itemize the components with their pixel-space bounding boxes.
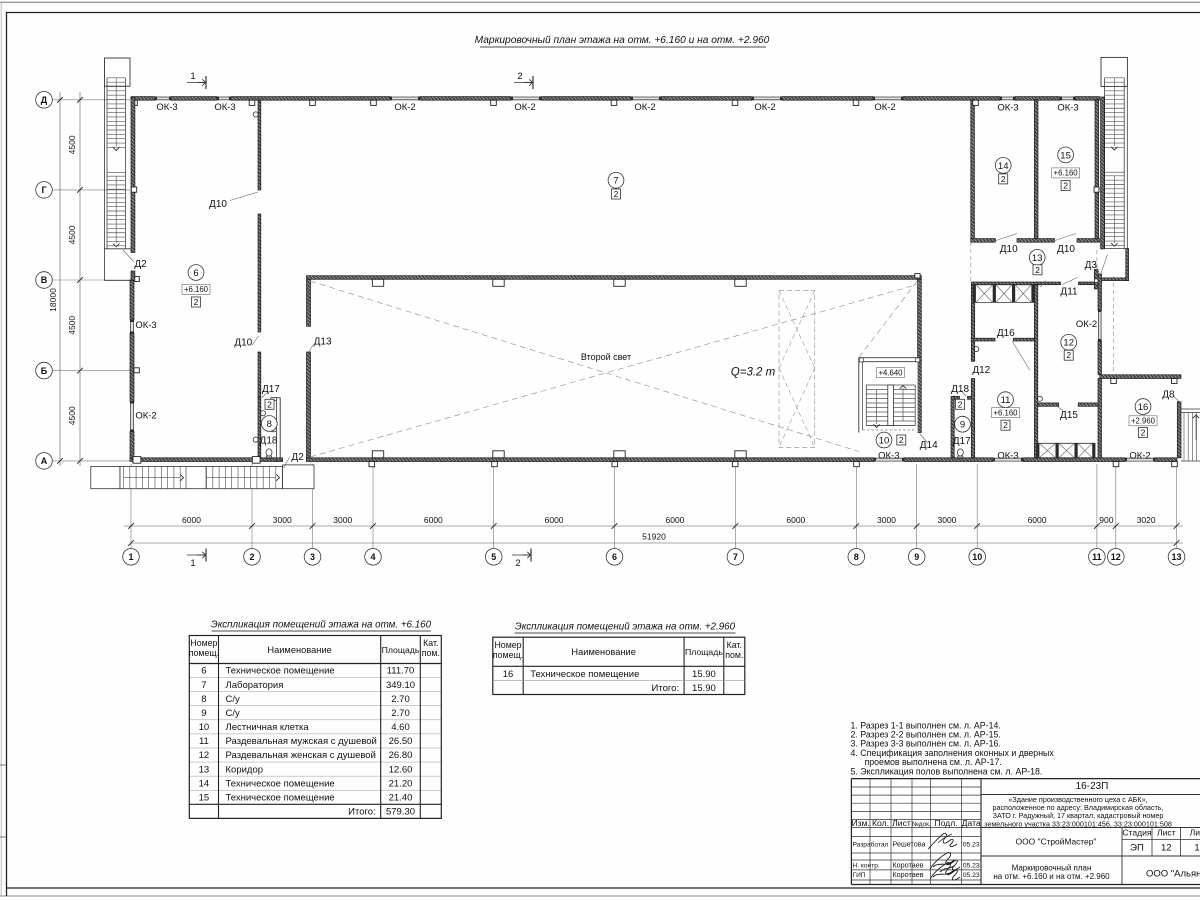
svg-text:№док.: №док.	[912, 821, 931, 828]
svg-text:Экспликация помещений этажа на: Экспликация помещений этажа на отм. +6.1…	[211, 620, 432, 631]
svg-text:Д10: Д10	[1057, 244, 1075, 255]
svg-text:Н. контр.: Н. контр.	[853, 862, 880, 869]
svg-text:Раздевальная мужская с душевой: Раздевальная мужская с душевой	[226, 736, 377, 747]
svg-text:6: 6	[193, 268, 198, 279]
svg-text:ООО "Альянс": ООО "Альянс"	[1146, 869, 1200, 880]
svg-text:ОК-2: ОК-2	[394, 102, 415, 113]
svg-text:2: 2	[517, 71, 522, 82]
svg-text:ОК-2: ОК-2	[1076, 319, 1097, 330]
svg-text:Второй свет: Второй свет	[581, 352, 631, 362]
svg-text:+2.960: +2.960	[1131, 417, 1156, 426]
svg-text:21.40: 21.40	[389, 792, 413, 803]
svg-text:26.80: 26.80	[389, 750, 413, 761]
svg-text:2: 2	[194, 297, 199, 307]
svg-text:Итого:: Итого:	[348, 807, 376, 818]
svg-text:4.60: 4.60	[391, 722, 410, 733]
svg-text:Площадь: Площадь	[685, 647, 723, 657]
svg-text:5. Экспликация полов выполнена: 5. Экспликация полов выполнена см. л. АР…	[851, 766, 1043, 776]
svg-text:Маркировочный план этажа на от: Маркировочный план этажа на отм. +6.160 …	[475, 35, 770, 46]
svg-text:Лист: Лист	[1157, 828, 1176, 838]
svg-text:ОК-3: ОК-3	[135, 320, 156, 331]
svg-text:ОК-2: ОК-2	[754, 102, 775, 113]
svg-text:900: 900	[1099, 515, 1113, 525]
svg-text:8: 8	[201, 694, 206, 705]
svg-text:9: 9	[960, 420, 965, 431]
svg-text:Д8: Д8	[1162, 389, 1175, 400]
svg-text:5: 5	[491, 552, 496, 562]
svg-text:9: 9	[201, 708, 206, 719]
svg-text:Номер: Номер	[190, 638, 217, 648]
svg-text:4500: 4500	[67, 135, 77, 154]
svg-text:15: 15	[1060, 150, 1071, 161]
svg-text:7: 7	[733, 552, 738, 562]
svg-text:ЭП: ЭП	[1130, 843, 1144, 854]
svg-text:2: 2	[1035, 265, 1040, 275]
svg-text:4500: 4500	[67, 225, 77, 244]
svg-text:Г: Г	[41, 185, 46, 195]
svg-text:8: 8	[267, 419, 272, 430]
svg-text:6: 6	[201, 666, 206, 677]
svg-text:Д12: Д12	[972, 365, 990, 376]
svg-text:на отм. +6.160 и на отм. +2.96: на отм. +6.160 и на отм. +2.960	[993, 872, 1110, 881]
svg-text:Коридор: Коридор	[226, 764, 264, 775]
svg-text:12: 12	[1063, 338, 1074, 349]
svg-text:11: 11	[1092, 552, 1102, 562]
svg-text:Д10: Д10	[209, 199, 227, 210]
svg-text:26.50: 26.50	[389, 736, 413, 747]
svg-text:2: 2	[267, 399, 272, 409]
svg-text:Д3: Д3	[1085, 260, 1098, 271]
svg-text:помещ.: помещ.	[189, 648, 219, 658]
svg-text:Лаборатория: Лаборатория	[226, 680, 284, 691]
svg-text:Д2: Д2	[134, 259, 147, 270]
svg-text:1: 1	[190, 71, 195, 82]
svg-text:10: 10	[972, 552, 982, 562]
svg-text:Д11: Д11	[1060, 287, 1078, 298]
svg-text:4500: 4500	[67, 406, 77, 425]
svg-text:пом.: пом.	[725, 650, 743, 660]
svg-text:579.30: 579.30	[386, 807, 415, 818]
svg-text:В: В	[41, 275, 48, 285]
svg-text:6000: 6000	[545, 515, 564, 525]
svg-text:Д10: Д10	[1000, 244, 1018, 255]
svg-text:349.10: 349.10	[386, 680, 415, 691]
svg-text:2.70: 2.70	[391, 708, 410, 719]
svg-text:Лестничная клетка: Лестничная клетка	[226, 722, 310, 733]
svg-text:11: 11	[199, 736, 209, 747]
svg-text:16-23П: 16-23П	[1076, 781, 1109, 792]
svg-text:2.70: 2.70	[391, 694, 410, 705]
svg-text:2: 2	[1063, 181, 1068, 191]
svg-text:111.70: 111.70	[387, 666, 415, 677]
svg-text:7: 7	[201, 680, 206, 691]
svg-text:Изм.: Изм.	[851, 818, 869, 828]
svg-text:Д15: Д15	[1060, 410, 1078, 421]
svg-text:Д10: Д10	[234, 337, 252, 348]
svg-text:11: 11	[1001, 395, 1011, 406]
svg-text:2: 2	[515, 558, 520, 569]
svg-text:ОК-2: ОК-2	[514, 102, 535, 113]
svg-text:7: 7	[613, 176, 618, 187]
svg-text:6000: 6000	[182, 515, 201, 525]
svg-text:ОК-3: ОК-3	[1057, 103, 1078, 114]
svg-text:16: 16	[503, 669, 514, 680]
svg-text:Коротаев: Коротаев	[893, 870, 924, 879]
svg-text:пом.: пом.	[422, 648, 440, 658]
svg-text:Решетова: Решетова	[893, 840, 926, 849]
svg-text:12: 12	[199, 750, 210, 761]
svg-text:12: 12	[1111, 552, 1121, 562]
svg-text:3000: 3000	[273, 515, 292, 525]
svg-text:Д2: Д2	[291, 452, 304, 463]
svg-text:2: 2	[899, 435, 904, 445]
svg-text:6: 6	[612, 552, 617, 562]
svg-text:6000: 6000	[424, 515, 443, 525]
svg-text:Б: Б	[41, 366, 48, 376]
svg-text:6000: 6000	[665, 515, 684, 525]
svg-text:13: 13	[199, 764, 210, 775]
svg-text:+6.160: +6.160	[1054, 169, 1079, 178]
svg-text:ОК-3: ОК-3	[997, 103, 1018, 114]
svg-text:15: 15	[199, 792, 210, 803]
svg-text:18000: 18000	[48, 288, 58, 312]
svg-text:Лист: Лист	[892, 818, 911, 828]
svg-text:21.20: 21.20	[389, 778, 413, 789]
svg-text:Стадия: Стадия	[1122, 828, 1152, 838]
svg-text:ООО "СтройМастер": ООО "СтройМастер"	[1016, 837, 1097, 847]
svg-text:Площадь: Площадь	[382, 645, 420, 655]
svg-text:1: 1	[128, 552, 133, 562]
svg-text:ОК-3: ОК-3	[214, 102, 235, 113]
svg-text:Д: Д	[41, 95, 48, 105]
svg-text:Лис: Лис	[1190, 828, 1200, 838]
svg-text:ОК-2: ОК-2	[634, 102, 655, 113]
svg-text:Наименование: Наименование	[571, 647, 635, 657]
svg-text:3000: 3000	[937, 515, 956, 525]
svg-text:3: 3	[310, 552, 315, 562]
svg-text:13: 13	[1171, 552, 1181, 562]
svg-text:Д16: Д16	[997, 328, 1015, 339]
svg-text:ОК-3: ОК-3	[997, 451, 1018, 462]
svg-text:Кол.: Кол.	[872, 818, 889, 828]
svg-text:12: 12	[1161, 843, 1172, 854]
svg-text:3020: 3020	[1137, 515, 1156, 525]
svg-text:Д17: Д17	[262, 384, 280, 395]
svg-text:4: 4	[370, 552, 375, 562]
svg-text:+4.640: +4.640	[878, 368, 903, 377]
svg-text:С/у: С/у	[226, 708, 241, 719]
svg-text:Д17: Д17	[953, 436, 971, 447]
svg-text:Дата: Дата	[962, 818, 981, 828]
svg-text:Техническое помещение: Техническое помещение	[530, 669, 639, 680]
svg-text:Д18: Д18	[951, 384, 969, 395]
svg-text:ОК-2: ОК-2	[135, 411, 156, 422]
svg-text:+6.160: +6.160	[993, 409, 1018, 418]
svg-text:3000: 3000	[333, 515, 352, 525]
svg-text:Кат.: Кат.	[423, 638, 438, 648]
svg-text:Итого:: Итого:	[652, 683, 680, 694]
svg-text:2: 2	[1066, 350, 1071, 360]
svg-text:Коротаев: Коротаев	[893, 860, 924, 869]
svg-text:2: 2	[1003, 420, 1008, 430]
svg-text:8: 8	[854, 552, 859, 562]
svg-text:Д18: Д18	[260, 436, 278, 447]
svg-text:А: А	[41, 456, 48, 466]
svg-text:ОК-2: ОК-2	[874, 102, 895, 113]
svg-text:Разработал: Разработал	[853, 841, 889, 849]
svg-text:Подл.: Подл.	[934, 818, 957, 828]
svg-text:3000: 3000	[877, 515, 896, 525]
svg-text:2: 2	[958, 399, 963, 409]
svg-text:4500: 4500	[67, 316, 77, 335]
svg-text:Наименование: Наименование	[267, 645, 331, 655]
svg-text:2: 2	[249, 552, 254, 562]
svg-text:Техническое помещение: Техническое помещение	[226, 792, 335, 803]
svg-text:ОК-3: ОК-3	[156, 102, 177, 113]
svg-text:Д14: Д14	[920, 440, 938, 451]
svg-text:2: 2	[1001, 174, 1006, 184]
svg-text:1: 1	[190, 558, 195, 569]
svg-text:05.23: 05.23	[963, 872, 980, 879]
svg-text:13: 13	[1032, 253, 1043, 264]
svg-text:С/у: С/у	[226, 694, 241, 705]
svg-text:Номер: Номер	[494, 640, 521, 650]
svg-text:14: 14	[199, 778, 210, 789]
svg-text:15.90: 15.90	[692, 669, 716, 680]
svg-text:12.60: 12.60	[389, 764, 413, 775]
svg-text:ОК-2: ОК-2	[1129, 451, 1150, 462]
svg-text:ОК-3: ОК-3	[878, 451, 899, 462]
svg-text:14: 14	[998, 161, 1009, 172]
svg-text:16: 16	[1138, 402, 1149, 413]
svg-text:Раздевальная женская с душевой: Раздевальная женская с душевой	[226, 750, 376, 761]
svg-text:2: 2	[614, 189, 619, 199]
svg-text:6000: 6000	[1028, 515, 1047, 525]
svg-text:2: 2	[1141, 428, 1146, 438]
svg-text:10: 10	[879, 435, 890, 446]
svg-text:1: 1	[1194, 843, 1199, 854]
svg-text:9: 9	[914, 552, 919, 562]
svg-text:помещ.: помещ.	[493, 650, 523, 660]
svg-text:+6.160: +6.160	[184, 285, 209, 294]
svg-text:Техническое помещение: Техническое помещение	[226, 778, 335, 789]
svg-text:6000: 6000	[786, 515, 805, 525]
svg-text:51920: 51920	[642, 532, 666, 542]
svg-text:Q=3.2 т: Q=3.2 т	[731, 367, 776, 379]
svg-text:15.90: 15.90	[692, 683, 716, 694]
svg-text:Д13: Д13	[314, 336, 332, 347]
svg-text:Экспликация помещений этажа на: Экспликация помещений этажа на отм. +2.9…	[515, 622, 736, 633]
svg-text:Кат.: Кат.	[727, 640, 742, 650]
svg-text:05.23: 05.23	[963, 842, 980, 849]
svg-text:10: 10	[199, 722, 210, 733]
svg-text:05.23: 05.23	[963, 862, 980, 869]
svg-text:Техническое помещение: Техническое помещение	[226, 666, 335, 677]
svg-text:ГИП: ГИП	[853, 872, 866, 879]
